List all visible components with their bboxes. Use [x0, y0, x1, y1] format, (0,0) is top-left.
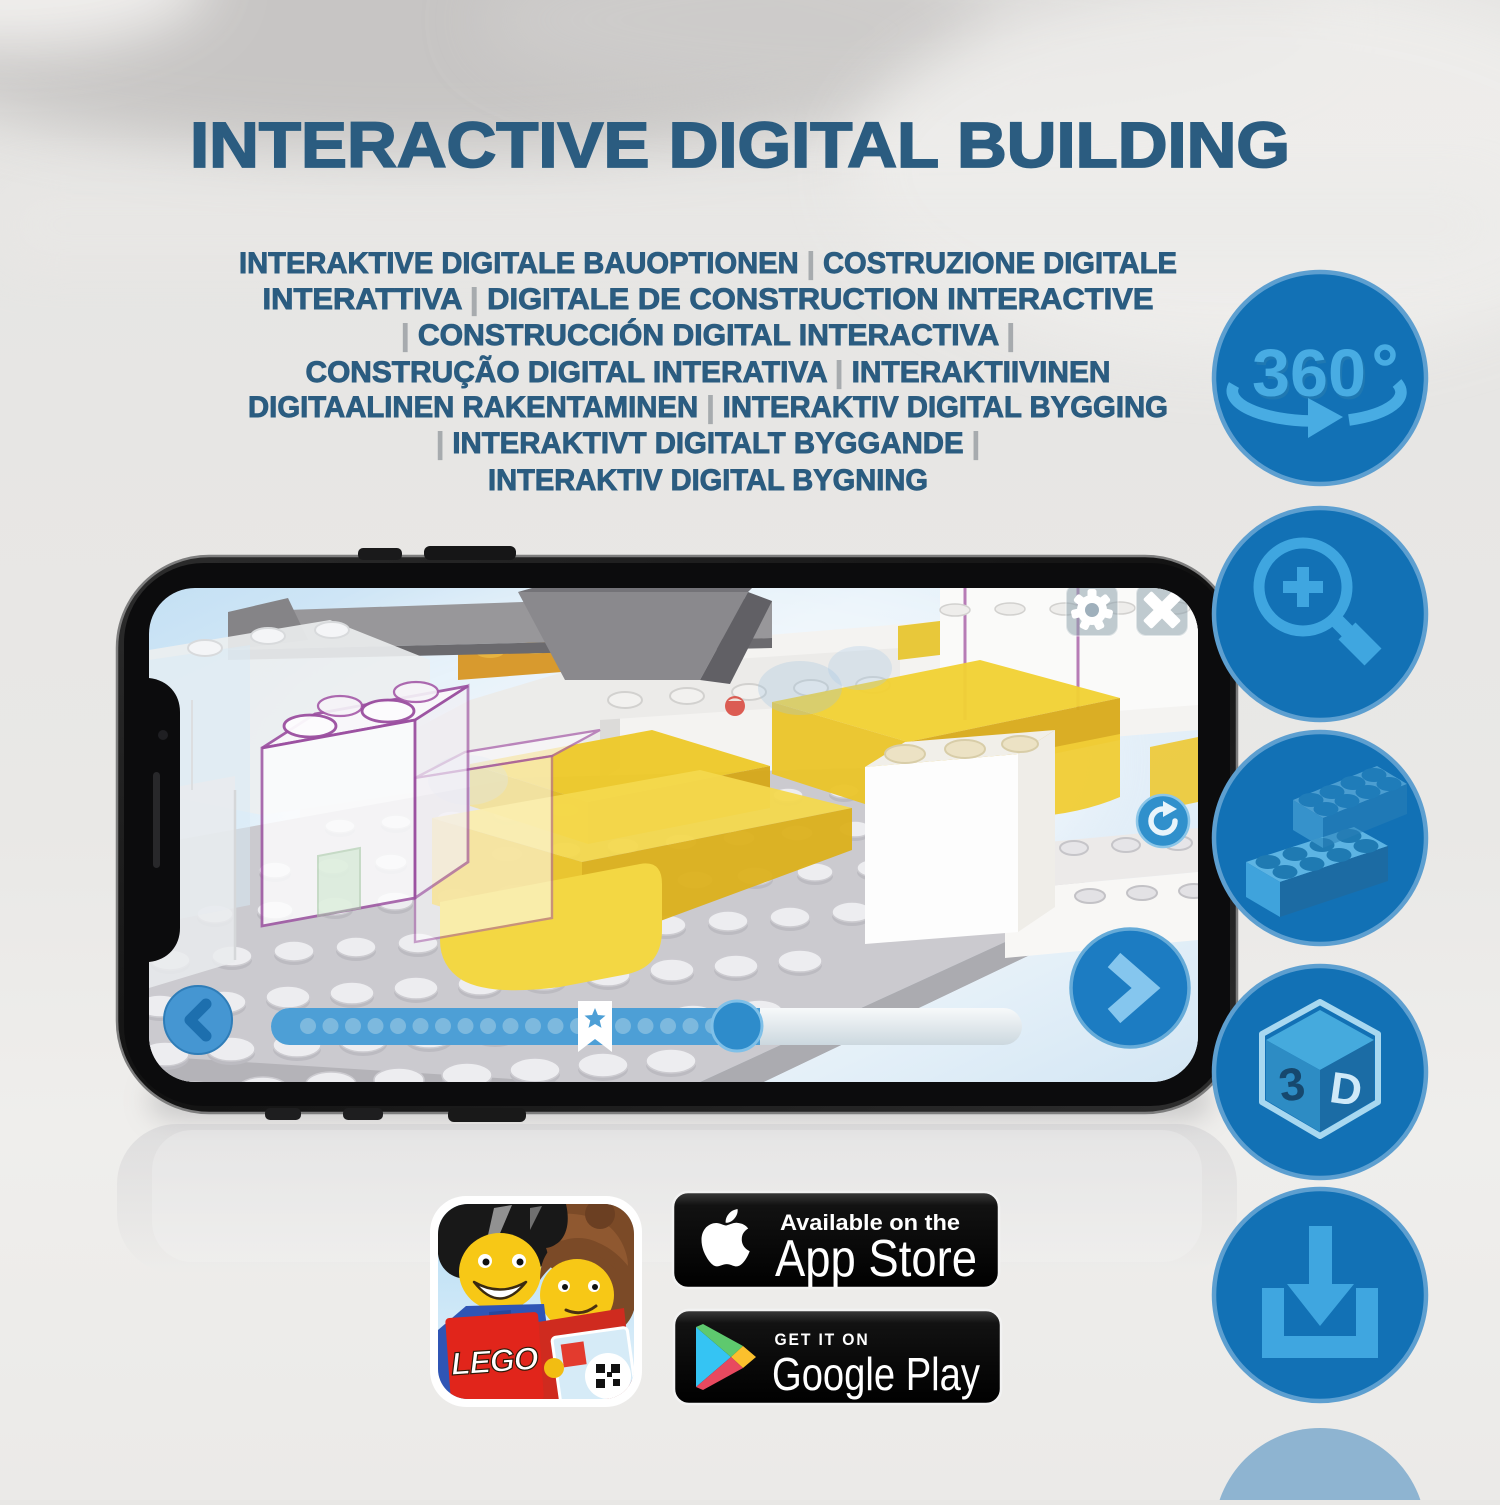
- svg-text:| CONSTRUCCIÓN DIGITAL INTERAC: | CONSTRUCCIÓN DIGITAL INTERACTIVA |: [401, 318, 1015, 352]
- svg-text:INTERACTIVE DIGITAL BUILDING: INTERACTIVE DIGITAL BUILDING: [190, 109, 1290, 181]
- svg-text:LEGO: LEGO: [450, 1340, 540, 1382]
- svg-text:D: D: [1327, 1063, 1365, 1116]
- svg-text:App Store: App Store: [775, 1230, 977, 1288]
- svg-text:Google Play: Google Play: [772, 1348, 980, 1400]
- svg-text:DIGITAALINEN RAKENTAMINEN | IN: DIGITAALINEN RAKENTAMINEN | INTERAKTIV D…: [248, 391, 1168, 424]
- svg-text:| INTERAKTIVT DIGITALT BYGGAND: | INTERAKTIVT DIGITALT BYGGANDE |: [436, 427, 980, 460]
- svg-text:CONSTRUÇÃO DIGITAL INTERATIVA: CONSTRUÇÃO DIGITAL INTERATIVA | INTERAKT…: [306, 355, 1111, 389]
- svg-text:GET IT ON: GET IT ON: [775, 1330, 870, 1349]
- svg-text:INTERAKTIVE DIGITALE BAUOPTION: INTERAKTIVE DIGITALE BAUOPTIONEN | COSTR…: [239, 247, 1177, 280]
- svg-text:INTERAKTIV DIGITAL BYGNING: INTERAKTIV DIGITAL BYGNING: [488, 464, 928, 497]
- svg-text:INTERATTIVA | DIGITALE DE CONS: INTERATTIVA | DIGITALE DE CONSTRUCTION I…: [263, 283, 1154, 316]
